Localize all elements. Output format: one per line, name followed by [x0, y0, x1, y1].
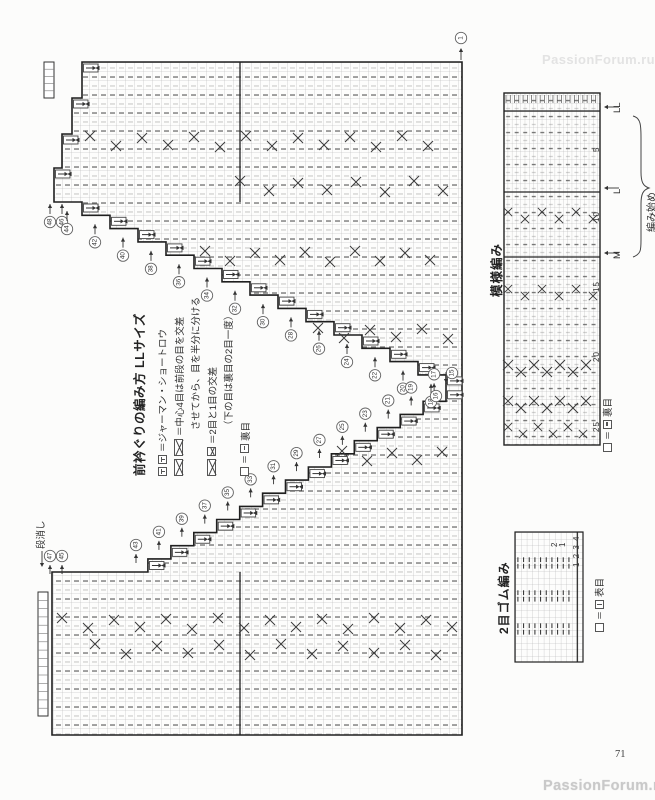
legend-two-one-cross: ＝2目と1目の交差: [205, 297, 219, 476]
legend-center-cross: ＝中心4目は前段の目を交差: [172, 297, 186, 476]
page-number: 71: [615, 749, 626, 760]
instruction-title: 前衿ぐりの編み方 LLサイズ: [129, 297, 148, 476]
pattern-chart-title: 模様編み: [486, 243, 505, 297]
svg-text:39: 39: [178, 515, 185, 523]
scanned-knitting-pattern-page: 4846444240383634323028262422201847454341…: [0, 0, 655, 800]
svg-text:36: 36: [176, 278, 183, 286]
svg-text:33: 33: [247, 475, 254, 483]
legend-german-short-row: ＝ジャーマン・ショートロウ: [155, 297, 169, 476]
dankeshi-label: 段消し: [33, 520, 47, 549]
purl-symbol-icon: [603, 419, 612, 428]
svg-text:29: 29: [293, 449, 300, 457]
purl-symbol-icon: [240, 444, 249, 453]
two-one-cross-label2: （下の目は裏目の2目一度）: [221, 297, 235, 430]
svg-text:25: 25: [339, 423, 346, 431]
cable-cross-icon: [174, 459, 183, 476]
pattern-legend-label: 裏目: [600, 397, 614, 416]
blank-square-icon: [240, 467, 249, 476]
cable-cross-icon-2: [174, 439, 183, 456]
svg-text:22: 22: [372, 371, 379, 379]
svg-text:30: 30: [260, 318, 267, 326]
svg-text:37: 37: [201, 502, 208, 510]
center-cross-label2: させてから、目を半分に分ける: [188, 297, 202, 430]
svg-text:42: 42: [92, 238, 99, 246]
pattern-chart-legend: ＝ 裏目: [600, 397, 614, 451]
svg-text:23: 23: [362, 410, 369, 418]
svg-text:31: 31: [270, 462, 277, 470]
svg-text:15: 15: [449, 369, 456, 377]
blank-square-icon: [603, 443, 612, 452]
svg-text:28: 28: [288, 331, 295, 339]
start-knitting-label: 編み始め: [643, 192, 655, 232]
svg-text:43: 43: [133, 541, 140, 549]
svg-text:48: 48: [47, 218, 54, 226]
svg-text:19: 19: [408, 383, 415, 391]
size-label-m: M: [612, 251, 623, 259]
svg-text:17: 17: [431, 370, 438, 378]
rib-chart-legend: ＝ 表目: [592, 577, 606, 631]
svg-text:24: 24: [344, 358, 351, 366]
pattern-row-number-25: 25: [592, 421, 601, 432]
svg-text:45: 45: [59, 552, 66, 560]
svg-text:35: 35: [224, 488, 231, 496]
blank-square-icon: [595, 623, 604, 632]
svg-text:21: 21: [385, 397, 392, 405]
size-label-ll: LL: [612, 102, 623, 113]
rib-legend-label: 表目: [592, 577, 606, 596]
two-one-cross-icon: [207, 459, 216, 476]
instruction-block: 前衿ぐりの編み方 LLサイズ ＝ジャーマン・ショートロウ ＝中心4目は前段の目を…: [129, 297, 254, 476]
svg-text:27: 27: [316, 436, 323, 444]
center-cross-label: ＝中心4目は前段の目を交差: [172, 317, 186, 436]
german-short-row-label: ＝ジャーマン・ショートロウ: [155, 329, 169, 452]
svg-text:26: 26: [316, 345, 323, 353]
two-one-cross-label: ＝2目と1目の交差: [205, 367, 219, 444]
pattern-row-number-20: 20: [592, 351, 601, 362]
svg-text:47: 47: [47, 552, 54, 560]
legend-purl: ＝ 裏目: [238, 297, 252, 476]
german-short-row-icon: [158, 467, 167, 476]
svg-text:41: 41: [155, 528, 162, 536]
svg-text:40: 40: [120, 252, 127, 260]
knitting-charts-canvas: 4846444240383634323028262422201847454341…: [0, 0, 655, 800]
pattern-row-number-10: 10: [592, 211, 601, 222]
svg-text:44: 44: [64, 225, 71, 233]
size-label-l: L: [612, 189, 623, 194]
pattern-row-number-15: 15: [592, 281, 601, 292]
german-short-row-icon-2: [158, 455, 167, 464]
two-one-cross-icon-2: [207, 447, 216, 456]
svg-text:1: 1: [458, 36, 465, 40]
watermark-top: PassionForum.ru: [542, 52, 655, 67]
purl-label: 裏目: [238, 422, 252, 441]
rib-stitch-numbers: 1 2 3 4: [572, 536, 581, 567]
rib-chart-title: 2目ゴム編み: [495, 561, 512, 634]
watermark-bottom: PassionForum.ru: [543, 778, 655, 794]
svg-text:16: 16: [433, 392, 440, 400]
pattern-row-number-5: 5: [592, 147, 601, 152]
rib-row-number-1: 1: [558, 542, 567, 547]
knit-symbol-icon: [595, 599, 604, 608]
svg-text:38: 38: [148, 265, 155, 273]
